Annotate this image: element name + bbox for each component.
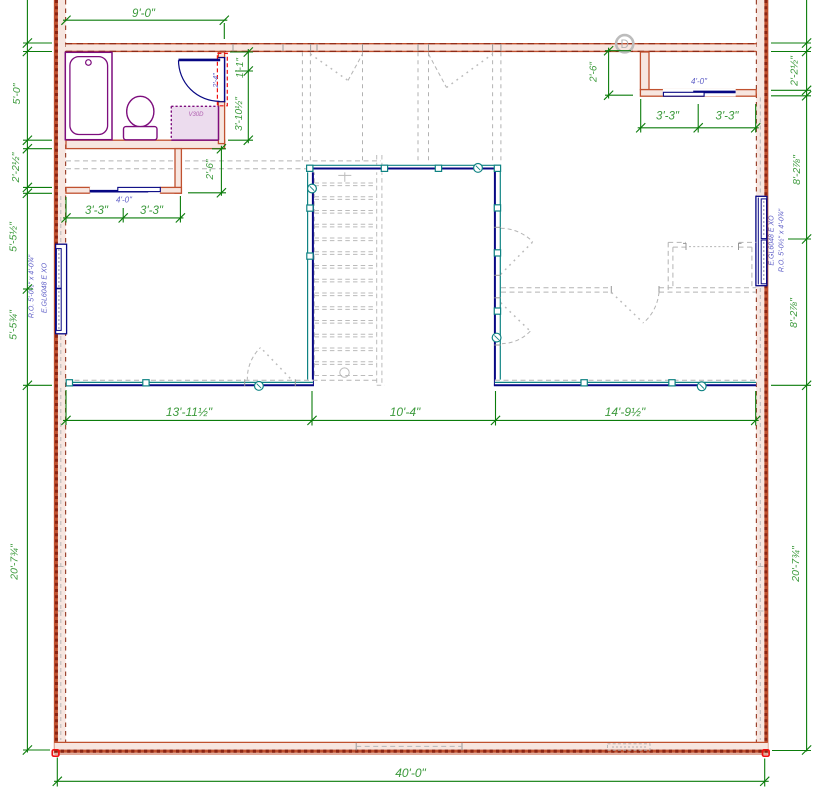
svg-text:20'-7¾": 20'-7¾" bbox=[9, 543, 21, 581]
svg-text:8'-2⅞": 8'-2⅞" bbox=[791, 154, 803, 185]
svg-text:1'-1": 1'-1" bbox=[235, 58, 246, 78]
svg-text:20'-7¾": 20'-7¾" bbox=[790, 545, 802, 583]
svg-text:3'-3": 3'-3" bbox=[716, 111, 740, 123]
svg-text:2'-6": 2'-6" bbox=[589, 62, 600, 83]
svg-text:2'-4": 2'-4" bbox=[211, 73, 220, 89]
svg-text:5'-0": 5'-0" bbox=[11, 82, 23, 104]
svg-text:5'-5¾": 5'-5¾" bbox=[7, 309, 19, 340]
svg-text:5'-5½": 5'-5½" bbox=[7, 221, 19, 252]
svg-text:4'-0": 4'-0" bbox=[691, 77, 708, 86]
svg-text:E.GL6048 E XO: E.GL6048 E XO bbox=[769, 215, 776, 266]
svg-text:D: D bbox=[621, 39, 629, 51]
svg-text:R.O. 5'-0½" x 4'-0¾": R.O. 5'-0½" x 4'-0¾" bbox=[28, 254, 36, 318]
svg-text:10'-4": 10'-4" bbox=[390, 405, 421, 419]
svg-text:E.GL6048 E XO: E.GL6048 E XO bbox=[42, 262, 49, 313]
svg-text:R.O. 5'-0½" x 4'-0¾": R.O. 5'-0½" x 4'-0¾" bbox=[778, 208, 786, 272]
svg-text:40'-0": 40'-0" bbox=[395, 766, 426, 780]
svg-text:3'-10½": 3'-10½" bbox=[234, 97, 245, 131]
svg-text:2'-2½": 2'-2½" bbox=[789, 55, 801, 87]
svg-text:4'-0": 4'-0" bbox=[116, 196, 133, 205]
svg-text:2'-6": 2'-6" bbox=[205, 159, 216, 180]
svg-text:13'-11½": 13'-11½" bbox=[166, 405, 213, 419]
svg-text:9'-0": 9'-0" bbox=[132, 8, 156, 20]
svg-text:8'-2⅞": 8'-2⅞" bbox=[788, 297, 800, 328]
svg-text:3'-3": 3'-3" bbox=[85, 205, 109, 217]
svg-text:3'-3": 3'-3" bbox=[140, 205, 164, 217]
svg-text:2'-2½": 2'-2½" bbox=[10, 151, 22, 183]
svg-text:14'-9½": 14'-9½" bbox=[605, 405, 646, 419]
svg-text:3'-3": 3'-3" bbox=[656, 111, 680, 123]
svg-text:V30D: V30D bbox=[188, 112, 204, 118]
